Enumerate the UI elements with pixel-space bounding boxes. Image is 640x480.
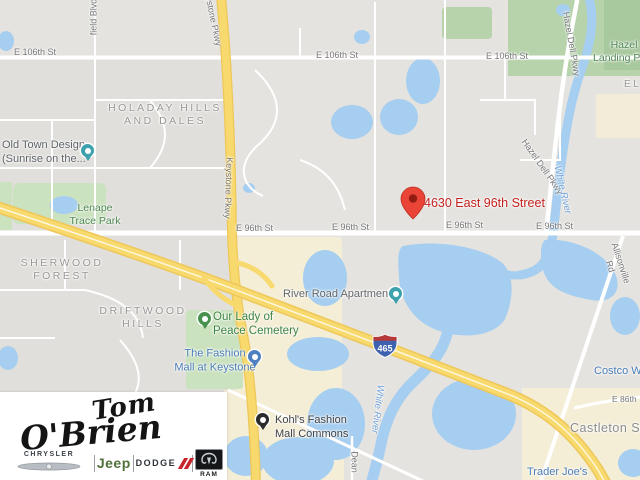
interstate-465-shield-icon: 465 — [372, 334, 398, 358]
chrysler-label: CHRYSLER — [6, 451, 92, 458]
jeep-logo: Jeep — [97, 455, 131, 471]
svg-text:465: 465 — [377, 344, 392, 354]
river-road-apartments-pin-icon[interactable] — [389, 287, 402, 300]
chrysler-logo: CHRYSLER — [6, 451, 92, 476]
old-town-design-pin-icon[interactable] — [81, 144, 94, 157]
ram-label: RAM — [200, 471, 218, 478]
brand-divider — [94, 455, 95, 472]
dodge-slashes-icon — [178, 458, 190, 469]
destination-pin-icon[interactable] — [400, 186, 426, 220]
ram-head-icon — [195, 449, 223, 470]
dealer-logo: Tom O'Brien CHRYSLER Jeep DODGE — [0, 392, 227, 480]
fashion-mall-pin-icon[interactable] — [248, 350, 261, 363]
map[interactable]: E 106th St E 106th St E 106th St E 96th … — [0, 0, 640, 480]
chrysler-wing-icon — [17, 462, 81, 471]
brand-divider — [133, 455, 134, 472]
dodge-logo: DODGE — [136, 458, 191, 469]
brand-row: CHRYSLER Jeep DODGE — [6, 451, 223, 475]
dodge-label: DODGE — [136, 458, 177, 468]
ram-logo: RAM — [195, 449, 223, 478]
kohls-pin-icon[interactable] — [256, 413, 269, 426]
cemetery-pin-icon[interactable] — [198, 312, 211, 325]
